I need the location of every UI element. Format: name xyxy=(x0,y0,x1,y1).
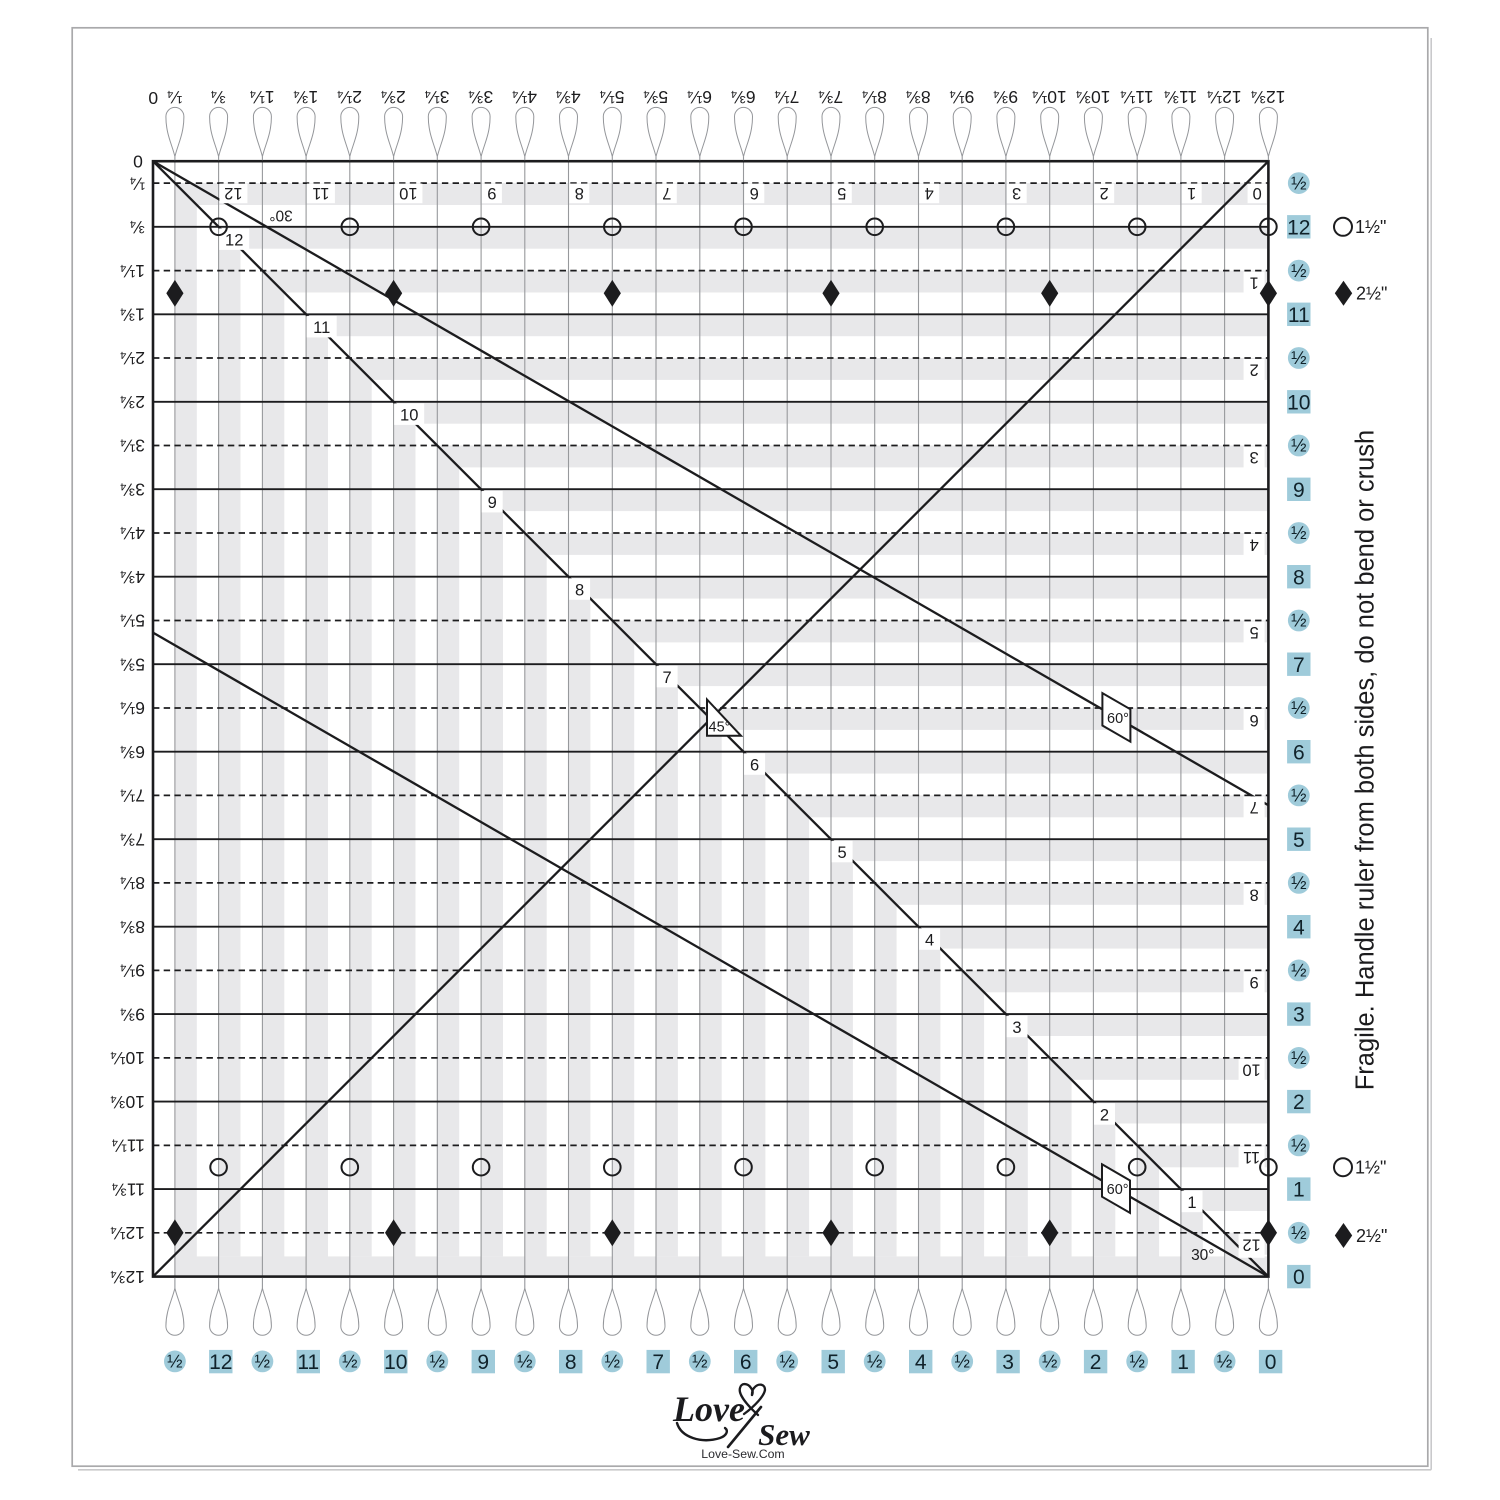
svg-text:10: 10 xyxy=(384,1351,407,1374)
svg-text:½: ½ xyxy=(1291,260,1306,281)
svg-text:½: ½ xyxy=(1291,960,1306,981)
svg-text:0: 0 xyxy=(133,151,143,171)
svg-text:12: 12 xyxy=(1242,1236,1260,1254)
svg-text:1¾: 1¾ xyxy=(120,304,145,324)
svg-text:30°: 30° xyxy=(269,207,292,224)
svg-text:½: ½ xyxy=(1291,1047,1306,1068)
svg-text:12: 12 xyxy=(209,1351,232,1374)
svg-text:¾: ¾ xyxy=(211,87,226,107)
svg-text:0: 0 xyxy=(1265,1351,1277,1374)
svg-text:¼: ¼ xyxy=(167,87,182,107)
svg-text:11: 11 xyxy=(312,184,329,202)
svg-text:½: ½ xyxy=(1042,1351,1057,1372)
svg-text:6¼: 6¼ xyxy=(120,698,145,718)
svg-text:11¾: 11¾ xyxy=(112,1179,145,1199)
svg-text:11: 11 xyxy=(1288,304,1310,327)
svg-text:8¼: 8¼ xyxy=(120,873,145,893)
svg-text:5: 5 xyxy=(827,1351,839,1374)
svg-text:4: 4 xyxy=(925,931,934,949)
svg-text:5¾: 5¾ xyxy=(643,87,668,107)
svg-text:4: 4 xyxy=(915,1351,927,1374)
svg-text:12¼: 12¼ xyxy=(1207,87,1241,107)
svg-text:11¾: 11¾ xyxy=(1164,87,1197,107)
svg-text:8: 8 xyxy=(575,581,584,599)
svg-text:4: 4 xyxy=(1250,536,1259,554)
svg-text:½: ½ xyxy=(1291,172,1306,193)
svg-text:3¼: 3¼ xyxy=(425,87,450,107)
svg-text:6: 6 xyxy=(1250,711,1259,729)
svg-text:½: ½ xyxy=(1217,1351,1232,1372)
svg-text:11: 11 xyxy=(1243,1148,1260,1166)
svg-text:7¼: 7¼ xyxy=(775,87,800,107)
svg-text:2: 2 xyxy=(1100,1106,1109,1124)
svg-text:30°: 30° xyxy=(1191,1247,1214,1264)
svg-text:½: ½ xyxy=(779,1351,794,1372)
svg-text:9: 9 xyxy=(1293,479,1305,502)
svg-text:0: 0 xyxy=(148,88,158,108)
svg-text:9: 9 xyxy=(488,494,497,512)
svg-text:½: ½ xyxy=(1291,1135,1306,1156)
svg-text:5¾: 5¾ xyxy=(120,654,145,674)
svg-text:¾: ¾ xyxy=(130,217,145,237)
svg-text:3¾: 3¾ xyxy=(469,87,494,107)
svg-text:2½": 2½" xyxy=(1356,1226,1387,1246)
svg-text:12¼: 12¼ xyxy=(111,1223,145,1243)
svg-text:8¾: 8¾ xyxy=(120,917,145,937)
svg-text:7: 7 xyxy=(663,669,672,687)
svg-text:2¾: 2¾ xyxy=(120,392,145,412)
svg-text:3: 3 xyxy=(1293,1004,1305,1027)
svg-text:½: ½ xyxy=(954,1351,969,1372)
svg-text:4¾: 4¾ xyxy=(120,567,145,587)
svg-text:5: 5 xyxy=(1293,829,1305,852)
svg-text:2: 2 xyxy=(1090,1351,1102,1374)
svg-text:2: 2 xyxy=(1293,1091,1305,1114)
svg-text:½: ½ xyxy=(255,1351,270,1372)
svg-text:7: 7 xyxy=(662,184,671,202)
svg-text:7: 7 xyxy=(652,1351,664,1374)
svg-text:4: 4 xyxy=(1293,916,1305,939)
svg-text:6¾: 6¾ xyxy=(120,742,145,762)
svg-text:¼: ¼ xyxy=(130,173,145,193)
svg-text:8¼: 8¼ xyxy=(862,87,887,107)
svg-text:1: 1 xyxy=(1187,184,1196,202)
svg-text:11¼: 11¼ xyxy=(112,1136,145,1156)
svg-text:5¼: 5¼ xyxy=(120,611,145,631)
svg-text:6: 6 xyxy=(750,184,759,202)
svg-text:7: 7 xyxy=(1250,798,1259,816)
svg-text:3: 3 xyxy=(1250,448,1259,466)
svg-text:½: ½ xyxy=(1291,522,1306,543)
svg-text:1: 1 xyxy=(1250,273,1259,291)
svg-text:½: ½ xyxy=(1291,697,1306,718)
svg-text:5: 5 xyxy=(838,844,847,862)
svg-text:Love: Love xyxy=(672,1389,745,1429)
svg-text:10: 10 xyxy=(1287,391,1310,414)
svg-text:½: ½ xyxy=(1291,610,1306,631)
svg-text:½: ½ xyxy=(1291,1222,1306,1243)
svg-text:5¼: 5¼ xyxy=(600,87,625,107)
svg-text:0: 0 xyxy=(1293,1266,1305,1289)
svg-text:9: 9 xyxy=(487,184,496,202)
svg-text:0: 0 xyxy=(1253,184,1262,202)
svg-text:6¾: 6¾ xyxy=(731,87,756,107)
svg-text:8: 8 xyxy=(1293,566,1305,589)
svg-text:8: 8 xyxy=(565,1351,577,1374)
svg-text:½: ½ xyxy=(1129,1351,1144,1372)
svg-text:½: ½ xyxy=(167,1351,182,1372)
svg-text:½: ½ xyxy=(1291,872,1306,893)
svg-text:12¾: 12¾ xyxy=(1251,87,1285,107)
svg-text:2¾: 2¾ xyxy=(381,87,406,107)
svg-text:60°: 60° xyxy=(1107,711,1129,727)
svg-text:½: ½ xyxy=(867,1351,882,1372)
svg-text:6: 6 xyxy=(740,1351,752,1374)
svg-text:4: 4 xyxy=(925,184,934,202)
svg-text:½: ½ xyxy=(517,1351,532,1372)
svg-text:1: 1 xyxy=(1293,1179,1305,1202)
svg-text:4¾: 4¾ xyxy=(556,87,581,107)
svg-text:10: 10 xyxy=(400,407,418,425)
svg-text:1¼: 1¼ xyxy=(250,87,275,107)
svg-text:9¾: 9¾ xyxy=(993,87,1018,107)
svg-text:9: 9 xyxy=(477,1351,489,1374)
svg-text:9¼: 9¼ xyxy=(120,961,145,981)
svg-text:10¼: 10¼ xyxy=(1032,87,1066,107)
svg-text:12: 12 xyxy=(1287,216,1310,239)
svg-text:½: ½ xyxy=(430,1351,445,1372)
svg-text:3¾: 3¾ xyxy=(120,479,145,499)
svg-text:11: 11 xyxy=(313,319,330,337)
svg-text:4¼: 4¼ xyxy=(512,87,537,107)
svg-text:12¾: 12¾ xyxy=(111,1267,145,1287)
svg-text:7¼: 7¼ xyxy=(120,786,145,806)
svg-text:6: 6 xyxy=(750,756,759,774)
svg-text:1½": 1½" xyxy=(1355,217,1386,237)
svg-text:½: ½ xyxy=(1291,435,1306,456)
svg-text:½: ½ xyxy=(1291,785,1306,806)
svg-text:11¼: 11¼ xyxy=(1120,87,1153,107)
svg-text:7¾: 7¾ xyxy=(120,829,145,849)
svg-text:1: 1 xyxy=(1187,1194,1196,1212)
svg-text:9¾: 9¾ xyxy=(120,1004,145,1024)
svg-text:1: 1 xyxy=(1177,1351,1189,1374)
svg-text:10: 10 xyxy=(399,184,417,202)
svg-text:3: 3 xyxy=(1012,1019,1021,1037)
svg-text:½: ½ xyxy=(692,1351,707,1372)
svg-text:12: 12 xyxy=(225,232,243,250)
svg-text:5: 5 xyxy=(837,184,846,202)
svg-text:6: 6 xyxy=(1293,741,1305,764)
svg-text:3¼: 3¼ xyxy=(120,436,145,456)
svg-text:½: ½ xyxy=(605,1351,620,1372)
svg-text:10¾: 10¾ xyxy=(111,1092,145,1112)
svg-text:6¼: 6¼ xyxy=(687,87,712,107)
svg-text:2¼: 2¼ xyxy=(337,87,362,107)
svg-text:9¼: 9¼ xyxy=(950,87,975,107)
svg-text:45°: 45° xyxy=(709,720,731,736)
svg-text:1¼: 1¼ xyxy=(120,261,145,281)
svg-text:Fragile. Handle ruler from bot: Fragile. Handle ruler from both sides, d… xyxy=(1352,430,1380,1091)
svg-text:10¾: 10¾ xyxy=(1076,87,1110,107)
svg-text:60°: 60° xyxy=(1107,1182,1129,1198)
svg-text:8¾: 8¾ xyxy=(906,87,931,107)
svg-text:½: ½ xyxy=(342,1351,357,1372)
svg-text:7: 7 xyxy=(1293,654,1305,677)
svg-text:1½": 1½" xyxy=(1355,1158,1386,1178)
svg-text:4¼: 4¼ xyxy=(120,523,145,543)
svg-text:1¾: 1¾ xyxy=(294,87,319,107)
svg-text:11: 11 xyxy=(297,1351,319,1374)
svg-text:12: 12 xyxy=(224,184,242,202)
svg-text:10¼: 10¼ xyxy=(111,1048,145,1068)
svg-text:Love-Sew.Com: Love-Sew.Com xyxy=(701,1447,784,1461)
svg-text:2¼: 2¼ xyxy=(120,348,145,368)
svg-text:8: 8 xyxy=(575,184,584,202)
svg-text:10: 10 xyxy=(1242,1061,1260,1079)
svg-text:3: 3 xyxy=(1012,184,1021,202)
svg-text:7¾: 7¾ xyxy=(818,87,843,107)
svg-text:½: ½ xyxy=(1291,347,1306,368)
svg-text:5: 5 xyxy=(1250,623,1259,641)
svg-text:2: 2 xyxy=(1100,184,1109,202)
svg-text:2½": 2½" xyxy=(1356,284,1387,304)
svg-text:8: 8 xyxy=(1250,886,1259,904)
svg-text:9: 9 xyxy=(1250,973,1259,991)
svg-text:3: 3 xyxy=(1002,1351,1014,1374)
svg-text:2: 2 xyxy=(1250,361,1259,379)
